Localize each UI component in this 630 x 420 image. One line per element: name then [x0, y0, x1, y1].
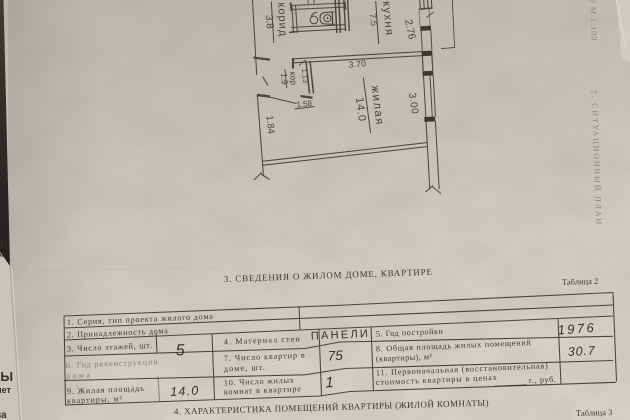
svg-text:1: 1	[325, 374, 334, 391]
svg-text:3.8: 3.8	[263, 15, 275, 30]
svg-text:Таблица 3: Таблица 3	[576, 407, 613, 418]
svg-text:ог: ог	[0, 252, 4, 259]
svg-text:дома: дома	[66, 370, 91, 380]
svg-text:75: 75	[327, 348, 343, 364]
svg-text:14.0: 14.0	[170, 384, 199, 399]
svg-text:корид: корид	[275, 2, 289, 37]
svg-text:7.5: 7.5	[368, 13, 379, 26]
svg-text:Таблица 2: Таблица 2	[562, 276, 599, 287]
svg-text:1.13: 1.13	[300, 68, 310, 83]
svg-text:30.7: 30.7	[567, 344, 596, 359]
svg-text:г., руб.: г., руб.	[529, 375, 556, 385]
svg-text:доме, шт.: доме, шт.	[224, 363, 265, 374]
svg-text:ва: ва	[0, 410, 7, 420]
svg-text:НЫ: НЫ	[0, 369, 13, 384]
svg-text:1.84: 1.84	[264, 115, 277, 135]
svg-text:1.9: 1.9	[279, 73, 290, 86]
svg-text:5: 5	[175, 342, 185, 359]
svg-text:Н: Н	[0, 239, 3, 250]
svg-text:б М 1:100: б М 1:100	[588, 0, 598, 41]
svg-text:мет: мет	[0, 385, 12, 395]
svg-text:3.70: 3.70	[348, 58, 366, 69]
